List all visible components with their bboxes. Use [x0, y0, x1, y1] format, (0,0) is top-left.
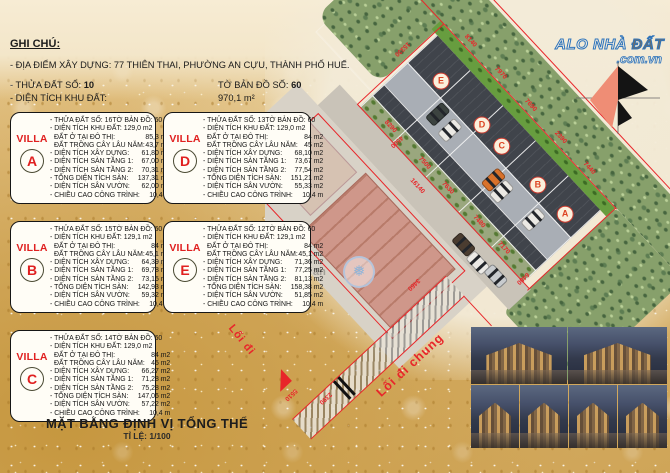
photo-row — [471, 327, 667, 384]
villa-area-line: - DIỆN TÍCH KHU ĐẤT: 129,0 m2 — [50, 125, 172, 133]
villa-row: ĐẤT Ở TẠI ĐÔ THỊ:84 m2 — [203, 243, 325, 251]
villa-row: - DIỆN TÍCH SÂN VƯỜN:59,32 m2 — [50, 292, 172, 300]
compass-north-icon — [576, 62, 660, 134]
villa-word: VILLA — [16, 351, 47, 363]
villa-row: - DIỆN TÍCH SÀN TẦNG 1:67,00 m2 — [50, 158, 172, 166]
villa-word: VILLA — [169, 133, 200, 145]
logo-part1: ALO NHÀ — [555, 36, 632, 53]
villa-row: ĐẤT Ở TẠI ĐÔ THỊ:84 m2 — [50, 243, 172, 251]
villa-letter-badge: A — [20, 149, 44, 173]
plot-badge-e: E — [433, 73, 450, 90]
villa-plot: - THỬA ĐẤT SỐ: 14 — [50, 335, 112, 343]
villa-area-line: - DIỆN TÍCH KHU ĐẤT: 129,0 m2 — [50, 343, 172, 351]
villa-row: - DIỆN TÍCH SÀN TẦNG 2:77,54 m2 — [203, 167, 325, 175]
villa-plot-line: - THỬA ĐẤT SỐ: 14 TỜ BẢN ĐỒ: 60 — [50, 335, 172, 343]
villa-row: ĐẤT TRỒNG CÂY LÂU NĂM:45 m2 — [203, 142, 325, 150]
villa-row: - DIỆN TÍCH SÂN VƯỜN:55,33 m2 — [203, 183, 325, 191]
area-label: - DIỆN TÍCH KHU ĐẤT: — [10, 93, 107, 103]
villa-row: - DIỆN TÍCH SÀN TẦNG 1:77,25 m2 — [203, 267, 325, 275]
villa-card-details: - THỬA ĐẤT SỐ: 14 TỜ BẢN ĐỒ: 60 - DIỆN T… — [50, 335, 172, 418]
villa-area: - DIỆN TÍCH KHU ĐẤT: 129,0 m2 — [203, 125, 306, 133]
logo-part2: ĐẤT — [632, 36, 664, 53]
villa-row: - DIỆN TÍCH SÀN TẦNG 2:81,13 m2 — [203, 276, 325, 284]
note-title: GHI CHÚ: — [10, 38, 60, 50]
villa-row: ĐẤT Ở TẠI ĐÔ THỊ:84 m2 — [203, 134, 325, 142]
villa-letter-badge: D — [173, 149, 197, 173]
villa-area-line: - DIỆN TÍCH KHU ĐẤT: 129,1 m2 — [203, 234, 325, 242]
villa-render-photos — [471, 327, 667, 448]
villa-area: - DIỆN TÍCH KHU ĐẤT: 129,0 m2 — [50, 125, 153, 133]
plot-label: - THỬA ĐẤT SỐ: — [10, 80, 81, 90]
villa-row: ĐẤT TRỒNG CÂY LÂU NĂM:45 m2 — [50, 360, 172, 368]
villa-row: ĐẤT Ở TẠI ĐÔ THỊ:85,3 m2 — [50, 134, 172, 142]
villa-area-line: - DIỆN TÍCH KHU ĐẤT: 129,0 m2 — [203, 125, 325, 133]
villa-row: ĐẤT TRỒNG CÂY LÂU NĂM:45,1 m2 — [203, 251, 325, 259]
villa-row: - DIỆN TÍCH SÂN VƯỜN:51,85 m2 — [203, 292, 325, 300]
villa-word: VILLA — [169, 242, 200, 254]
plot-badge-b: B — [529, 176, 546, 193]
villa-row: - DIỆN TÍCH SÀN TẦNG 1:73,67 m2 — [203, 158, 325, 166]
villa-sheet: TỜ BẢN ĐỒ: 60 — [265, 226, 325, 234]
villa-letter-badge: C — [20, 367, 44, 391]
villa-plot-line: - THỬA ĐẤT SỐ: 15 TỜ BẢN ĐỒ: 60 — [50, 226, 172, 234]
brand-logo: ALO NHÀ ĐẤT — [555, 36, 664, 53]
villa-photo — [568, 327, 667, 384]
photo-row — [471, 385, 667, 448]
villa-card: VILLA B - THỬA ĐẤT SỐ: 15 TỜ BẢN ĐỒ: 60 … — [10, 221, 156, 313]
villa-plot: - THỬA ĐẤT SỐ: 13 — [203, 117, 265, 125]
villa-plot: - THỬA ĐẤT SỐ: 16 — [50, 117, 112, 125]
villa-area: - DIỆN TÍCH KHU ĐẤT: 129,1 m2 — [50, 234, 153, 242]
villa-sheet: TỜ BẢN ĐỒ: 60 — [112, 335, 172, 343]
plan-title: MẶT BẰNG ĐỊNH VỊ TỔNG THỂ — [22, 416, 272, 431]
plot-badge-a: A — [557, 206, 574, 223]
villa-plot-line: - THỬA ĐẤT SỐ: 16 TỜ BẢN ĐỒ: 60 — [50, 117, 172, 125]
villa-plot: - THỬA ĐẤT SỐ: 12 — [203, 226, 265, 234]
villa-card-left: VILLA C — [14, 335, 50, 418]
villa-card-details: - THỬA ĐẤT SỐ: 16 TỜ BẢN ĐỒ: 60 - DIỆN T… — [50, 117, 172, 200]
plot-number-line: - THỬA ĐẤT SỐ: 10 — [10, 80, 94, 90]
villa-card-details: - THỬA ĐẤT SỐ: 12 TỜ BẢN ĐỒ: 60 - DIỆN T… — [203, 226, 325, 309]
villa-word: VILLA — [16, 133, 47, 145]
plot-badge-c: C — [493, 138, 510, 155]
villa-row: ĐẤT Ở TẠI ĐÔ THỊ:84 m2 — [50, 352, 172, 360]
villa-row: - DIỆN TÍCH SÀN TẦNG 1:69,78 m2 — [50, 267, 172, 275]
villa-letter-badge: B — [20, 258, 44, 282]
villa-row: ĐẤT TRỒNG CÂY LÂU NĂM:45,1 m2 — [50, 251, 172, 259]
plan-scale: TỈ LỆ: 1/100 — [22, 431, 272, 441]
villa-cards: VILLA A - THỬA ĐẤT SỐ: 16 TỜ BẢN ĐỒ: 60 … — [10, 112, 311, 422]
villa-word: VILLA — [16, 242, 47, 254]
villa-card: VILLA C - THỬA ĐẤT SỐ: 14 TỜ BẢN ĐỒ: 60 … — [10, 330, 156, 422]
villa-row: - DIỆN TÍCH SÂN VƯỜN:57,22 m2 — [50, 401, 172, 409]
villa-row: ĐẤT TRỒNG CÂY LÂU NĂM:43,7 m2 — [50, 142, 172, 150]
villa-card-details: - THỬA ĐẤT SỐ: 15 TỜ BẢN ĐỒ: 60 - DIỆN T… — [50, 226, 172, 309]
villa-row: - DIỆN TÍCH SÀN TẦNG 2:75,28 m2 — [50, 385, 172, 393]
villa-row: - DIỆN TÍCH SÀN TẦNG 2:70,31 m2 — [50, 167, 172, 175]
villa-row: - DIỆN TÍCH SÀN TẦNG 1:71,28 m2 — [50, 376, 172, 384]
villa-plot-line: - THỬA ĐẤT SỐ: 13 TỜ BẢN ĐỒ: 60 — [203, 117, 325, 125]
villa-row: - CHIỀU CAO CÔNG TRÌNH:10,4 m — [203, 192, 325, 200]
villa-photo — [520, 385, 568, 448]
villa-row: - CHIỀU CAO CÔNG TRÌNH:10,4 m — [203, 301, 325, 309]
sheet-label: TỜ BẢN ĐỒ SỐ: — [218, 80, 288, 90]
villa-area: - DIỆN TÍCH KHU ĐẤT: 129,0 m2 — [50, 343, 153, 351]
address-line: - ĐỊA ĐIỂM XÂY DỰNG: 77 THIÊN THAI, PHƯỜ… — [10, 60, 350, 70]
villa-row: - DIỆN TÍCH SÀN TẦNG 2:73,15 m2 — [50, 276, 172, 284]
sheet-number: 60 — [291, 80, 301, 90]
villa-card-details: - THỬA ĐẤT SỐ: 13 TỜ BẢN ĐỒ: 60 - DIỆN T… — [203, 117, 325, 200]
plot-number: 10 — [84, 80, 94, 90]
villa-area-line: - DIỆN TÍCH KHU ĐẤT: 129,1 m2 — [50, 234, 172, 242]
plot-badge-d: D — [473, 117, 490, 134]
villa-sheet: TỜ BẢN ĐỒ: 60 — [265, 117, 325, 125]
sheet-number-line: TỜ BẢN ĐỒ SỐ: 60 — [218, 80, 301, 90]
watermark-snow-icon: ❅ — [343, 256, 375, 288]
villa-card-left: VILLA B — [14, 226, 50, 309]
villa-row: - CHIỀU CAO CÔNG TRÌNH:10,4 m — [50, 192, 172, 200]
villa-photo — [569, 385, 617, 448]
villa-card-left: VILLA E — [167, 226, 203, 309]
villa-photo — [471, 327, 567, 384]
villa-plot-line: - THỬA ĐẤT SỐ: 12 TỜ BẢN ĐỒ: 60 — [203, 226, 325, 234]
villa-card: VILLA A - THỬA ĐẤT SỐ: 16 TỜ BẢN ĐỒ: 60 … — [10, 112, 156, 204]
villa-photo — [618, 385, 667, 448]
villa-row: - DIỆN TÍCH SÂN VƯỜN:62,00 m2 — [50, 183, 172, 191]
villa-card: VILLA D - THỬA ĐẤT SỐ: 13 TỜ BẢN ĐỒ: 60 … — [163, 112, 311, 204]
villa-card: VILLA E - THỬA ĐẤT SỐ: 12 TỜ BẢN ĐỒ: 60 … — [163, 221, 311, 313]
villa-photo — [471, 385, 519, 448]
area-value: 970,1 m² — [218, 93, 255, 103]
villa-area: - DIỆN TÍCH KHU ĐẤT: 129,1 m2 — [203, 234, 306, 242]
villa-plot: - THỬA ĐẤT SỐ: 15 — [50, 226, 112, 234]
villa-letter-badge: E — [173, 258, 197, 282]
villa-card-left: VILLA A — [14, 117, 50, 200]
villa-card-left: VILLA D — [167, 117, 203, 200]
villa-row: - CHIỀU CAO CÔNG TRÌNH:10,4 m — [50, 301, 172, 309]
